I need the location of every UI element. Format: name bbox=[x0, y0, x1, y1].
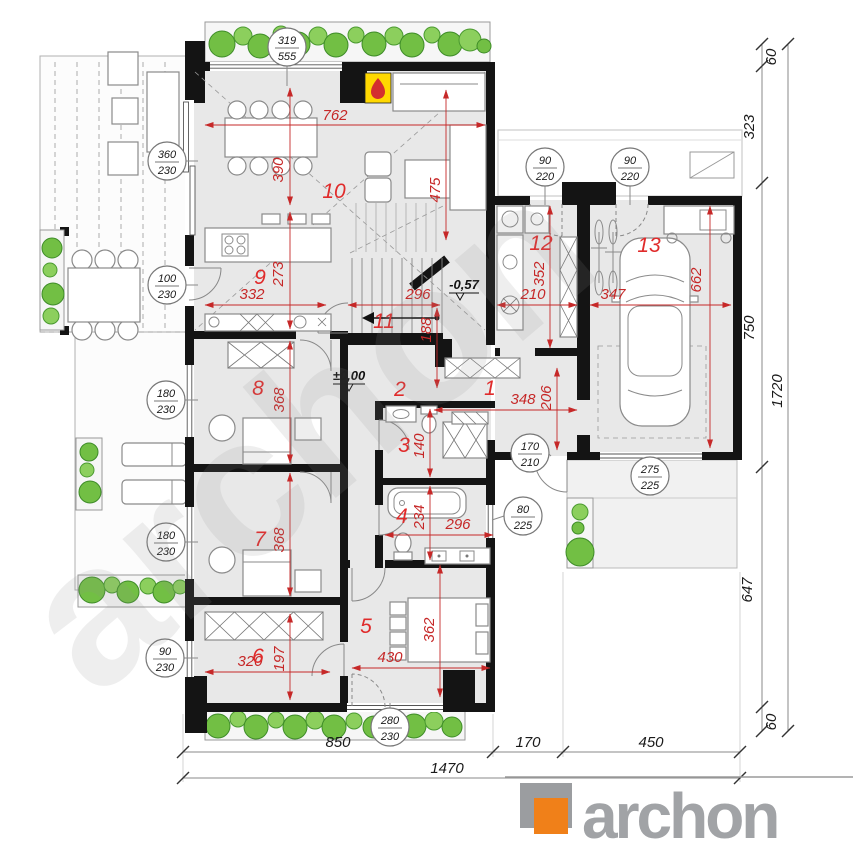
room-label-10: 10 bbox=[322, 180, 346, 203]
chain-right-750: 750 bbox=[741, 315, 758, 341]
dim-label-362: 362 bbox=[421, 617, 438, 643]
bubble-319-555-bottom: 555 bbox=[278, 51, 297, 63]
logo-brand-text: archon bbox=[582, 780, 777, 852]
chain-right-60-top: 60 bbox=[763, 48, 780, 65]
dimension-chain-right: 60 323 750 647 60 1720 bbox=[739, 38, 794, 737]
chain-bottom-170: 170 bbox=[515, 734, 541, 751]
bubble-80-225-top: 80 bbox=[517, 504, 530, 516]
dim-label-197: 197 bbox=[271, 646, 288, 672]
chain-bottom-450: 450 bbox=[638, 734, 664, 751]
floorplan-drawing: 762 390 273 475 332 296 188 210 352 347 … bbox=[0, 0, 853, 853]
room-label-4: 4 bbox=[396, 505, 408, 528]
dim-label-296-bath: 296 bbox=[444, 516, 471, 533]
chain-right-323: 323 bbox=[741, 114, 758, 140]
chain-bottom-total-1470: 1470 bbox=[430, 760, 464, 777]
bubble-360-230-top: 360 bbox=[158, 149, 177, 161]
chain-right-total-1720: 1720 bbox=[769, 374, 786, 408]
bubble-360-230-bottom: 230 bbox=[157, 165, 177, 177]
dim-label-273: 273 bbox=[270, 261, 287, 288]
bubble-170-210-top: 170 bbox=[521, 441, 540, 453]
bubble-280-230-top: 280 bbox=[380, 715, 400, 727]
fireplace bbox=[365, 73, 391, 103]
bubble-90-220-b-top: 90 bbox=[624, 155, 637, 167]
room-label-9: 9 bbox=[254, 266, 266, 289]
dim-label-762: 762 bbox=[322, 107, 348, 124]
room-label-5: 5 bbox=[360, 615, 372, 638]
chain-right-647: 647 bbox=[739, 577, 756, 603]
dim-label-430: 430 bbox=[377, 649, 403, 666]
plant-strip-top bbox=[205, 22, 491, 62]
bubble-280-230-bottom: 230 bbox=[380, 731, 400, 743]
dim-label-206: 206 bbox=[538, 385, 555, 412]
logo-orange-square bbox=[534, 798, 568, 834]
dim-label-662: 662 bbox=[688, 267, 705, 293]
bubble-170-210-bottom: 210 bbox=[520, 457, 540, 469]
chain-bottom-850: 850 bbox=[325, 734, 351, 751]
bubble-275-225-bottom: 225 bbox=[640, 480, 660, 492]
dim-label-234: 234 bbox=[411, 504, 428, 530]
bubble-100-230-top: 100 bbox=[158, 273, 177, 285]
chain-right-60-bottom: 60 bbox=[763, 713, 780, 730]
room-label-6: 6 bbox=[252, 645, 264, 668]
archon-logo: archon bbox=[505, 777, 853, 852]
bubble-90-220-b-bottom: 220 bbox=[620, 171, 640, 183]
bubble-90-220-a-bottom: 220 bbox=[535, 171, 555, 183]
dim-label-390: 390 bbox=[270, 157, 287, 183]
floorplan-page: 762 390 273 475 332 296 188 210 352 347 … bbox=[0, 0, 853, 853]
bubble-80-225-bottom: 225 bbox=[513, 520, 533, 532]
bubble-90-220-a-top: 90 bbox=[539, 155, 552, 167]
bubble-100-230-bottom: 230 bbox=[157, 289, 177, 301]
bubble-275-225-top: 275 bbox=[640, 464, 660, 476]
room-label-13: 13 bbox=[637, 234, 661, 257]
bubble-319-555-top: 319 bbox=[278, 35, 296, 47]
